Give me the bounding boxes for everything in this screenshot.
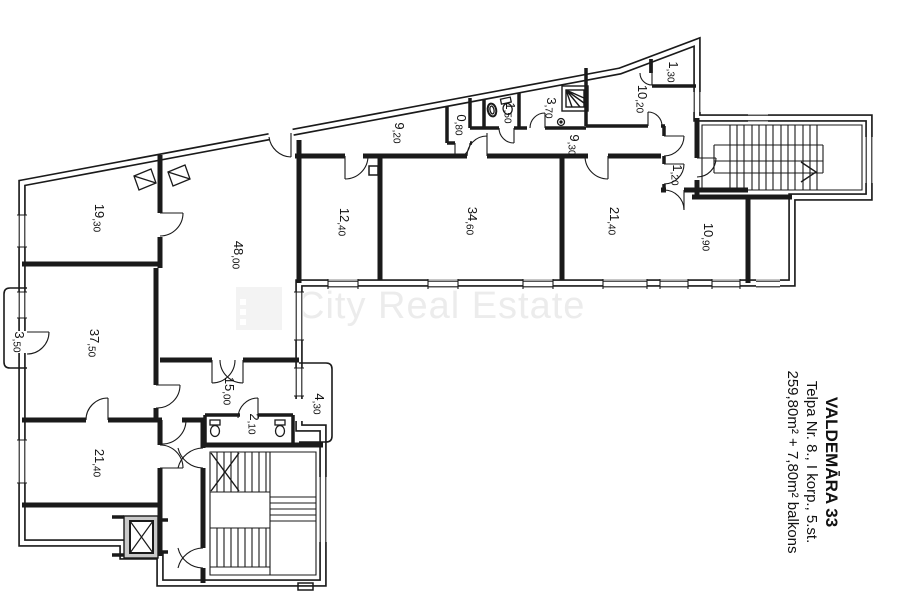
room-label-12-40: 12,40 [336,208,353,237]
room-label-0-80: 0,80 [453,114,470,136]
stair-direction-arrow [211,453,239,491]
room-label-9-30: 9,30 [566,134,583,156]
room-label-19-30: 19,30 [91,204,108,233]
sink-icon [487,103,498,117]
room-label-15-00: 15,00 [221,377,238,406]
room-label-34-60: 34,60 [464,207,481,236]
staircase-lower [210,452,316,590]
room-label-10-90: 10,90 [700,223,717,252]
room-label-37-50: 37,50 [86,329,103,358]
area-subtitle: 259,80m² + 7,80m² balkons [783,357,802,567]
vent-icon [134,169,156,190]
toilet-icon [210,420,220,437]
interior-walls [22,59,792,583]
room-label-48-00: 48,00 [230,241,247,270]
room-label-2-10: 2,10 [246,413,263,435]
room-label-1-30: 1,30 [665,61,682,83]
title-block: VALDEMĀRA 33 Telpa Nr. 8., I korp., 5.st… [783,357,841,567]
address-title: VALDEMĀRA 33 [821,357,841,567]
room-label-1-50: 1,50 [502,102,519,124]
room-label-4-30: 4,30 [311,393,328,415]
duct-icon [369,166,378,175]
elevator-icon [124,516,158,558]
toilet-icon [275,420,285,437]
room-label-21-40-top: 21,40 [606,207,623,236]
room-labels: 19,3048,0012,4034,6021,4010,9010,201,303… [11,61,717,477]
unit-subtitle: Telpa Nr. 8., I korp., 5.st. [802,357,821,567]
floor-plan-page: City Real Estate [0,0,906,615]
doors [27,73,716,568]
room-label-9-20: 9,20 [391,122,408,144]
vent-icon [168,165,190,186]
floor-plan-svg: 19,3048,0012,4034,6021,4010,9010,201,303… [0,0,906,615]
staircase-upper-right [702,125,862,190]
room-label-1-20: 1,20 [669,164,686,186]
drain-icon [558,119,565,126]
shower-icon [562,86,588,111]
room-label-3-70: 3,70 [543,97,560,119]
room-label-21-40-bottom: 21,40 [91,449,108,478]
room-label-10-20: 10,20 [634,85,651,114]
